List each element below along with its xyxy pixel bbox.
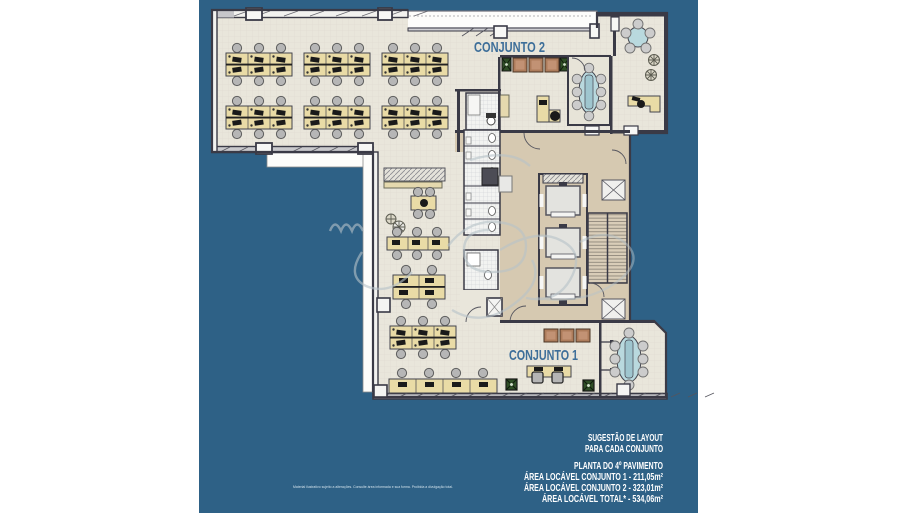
svg-text:SUGESTÃO DE LAYOUT: SUGESTÃO DE LAYOUT xyxy=(588,431,663,444)
svg-text:CONJUNTO 2: CONJUNTO 2 xyxy=(474,39,545,56)
svg-text:Material ilustrativo sujeito a: Material ilustrativo sujeito a alteraçõe… xyxy=(293,484,453,489)
svg-text:PLANTA DO 4º PAVIMENTO: PLANTA DO 4º PAVIMENTO xyxy=(574,461,663,472)
svg-text:PARA CADA CONJUNTO: PARA CADA CONJUNTO xyxy=(585,444,663,455)
svg-text:ÁREA LOCÁVEL TOTAL* - 534,06m²: ÁREA LOCÁVEL TOTAL* - 534,06m² xyxy=(542,492,663,505)
svg-text:ÁREA LOCÁVEL CONJUNTO 1 - 211,: ÁREA LOCÁVEL CONJUNTO 1 - 211,05m² xyxy=(524,470,663,483)
svg-text:CONJUNTO 1: CONJUNTO 1 xyxy=(509,347,578,364)
svg-text:ÁREA LOCÁVEL CONJUNTO 2 - 323,: ÁREA LOCÁVEL CONJUNTO 2 - 323,01m² xyxy=(524,481,663,494)
